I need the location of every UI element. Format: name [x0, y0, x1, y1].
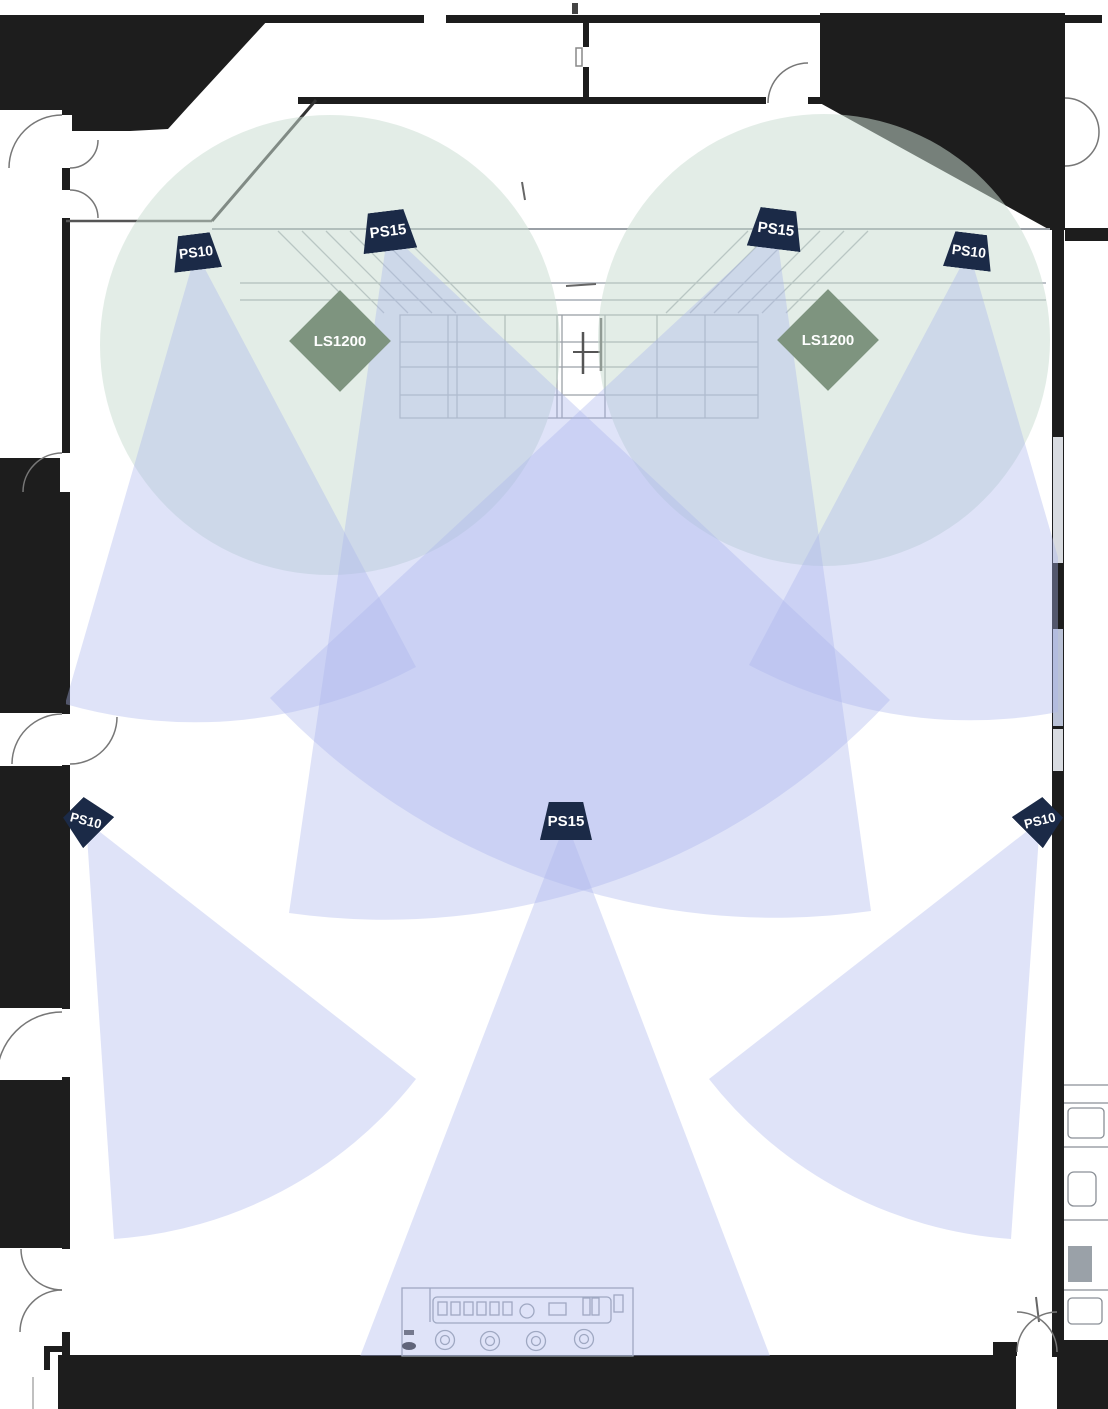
- speaker-marker-ps15-top-right[interactable]: PS15: [747, 206, 805, 252]
- subwoofer-marker-ls1200-left[interactable]: LS1200: [304, 305, 376, 377]
- restroom-fixtures: [1064, 1085, 1108, 1324]
- speaker-label: PS15: [757, 219, 795, 238]
- speaker-label: PS15: [369, 221, 407, 240]
- speaker-label: PS15: [548, 814, 585, 829]
- speaker-marker-ps10-mid-left[interactable]: PS10: [64, 802, 108, 838]
- speaker-marker-ps15-top-left[interactable]: PS15: [359, 208, 417, 254]
- speaker-label: PS10: [951, 242, 987, 260]
- speaker-marker-ps10-top-right[interactable]: PS10: [943, 230, 995, 272]
- speaker-marker-ps15-mid-center[interactable]: PS15: [540, 802, 592, 840]
- floorplan-drawing: [0, 0, 1108, 1409]
- speaker-marker-ps10-mid-right[interactable]: PS10: [1018, 802, 1062, 838]
- subwoofer-marker-ls1200-right[interactable]: LS1200: [792, 304, 864, 376]
- speaker-label: PS10: [178, 243, 214, 261]
- subwoofer-label: LS1200: [314, 334, 367, 349]
- speaker-coverage-floorplan: PS10 PS15 PS15 PS10 PS10 PS15 PS10 LS120…: [0, 0, 1108, 1409]
- speaker-marker-ps10-top-left[interactable]: PS10: [170, 231, 222, 273]
- subwoofer-label: LS1200: [802, 333, 855, 348]
